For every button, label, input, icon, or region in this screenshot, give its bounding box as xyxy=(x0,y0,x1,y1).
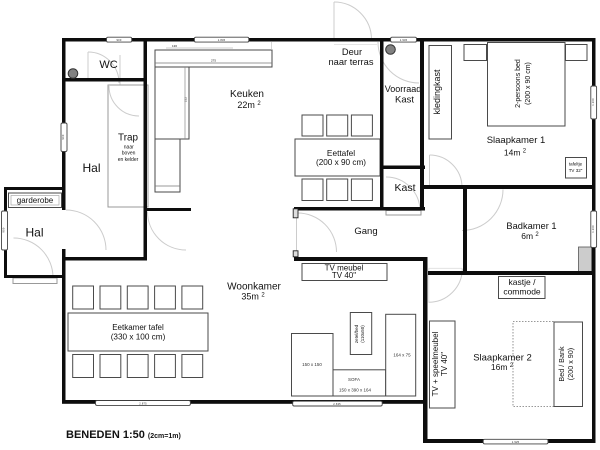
svg-text:900: 900 xyxy=(61,134,65,139)
svg-text:kastje /: kastje / xyxy=(509,277,537,287)
svg-text:SOFA: SOFA xyxy=(348,377,360,382)
svg-text:(330 x 100 cm): (330 x 100 cm) xyxy=(111,332,166,341)
svg-text:TV + speelmeubel: TV + speelmeubel xyxy=(431,331,440,396)
svg-text:2.875: 2.875 xyxy=(139,401,147,405)
svg-text:232: 232 xyxy=(184,97,188,102)
svg-text:(200 x 90): (200 x 90) xyxy=(566,348,575,380)
svg-text:1.945: 1.945 xyxy=(400,38,408,42)
svg-text:Bed / Bank: Bed / Bank xyxy=(557,346,566,382)
svg-text:TV 32": TV 32" xyxy=(569,168,583,173)
svg-text:Keuken: Keuken xyxy=(230,89,264,100)
svg-text:900: 900 xyxy=(117,38,122,42)
svg-text:150 x 150: 150 x 150 xyxy=(302,362,322,367)
svg-text:1.100: 1.100 xyxy=(591,225,595,233)
svg-text:tafeltje: tafeltje xyxy=(569,162,583,167)
svg-text:Deur: Deur xyxy=(342,47,362,57)
svg-text:boven: boven xyxy=(122,150,136,156)
svg-text:2.635: 2.635 xyxy=(333,402,341,406)
svg-text:1.100: 1.100 xyxy=(591,98,595,106)
svg-text:2-persoons bed: 2-persoons bed xyxy=(515,59,522,108)
svg-text:(200 x 90 cm): (200 x 90 cm) xyxy=(525,62,532,105)
svg-text:Kast: Kast xyxy=(395,94,414,105)
svg-text:Hal: Hal xyxy=(82,161,100,175)
svg-text:Hal: Hal xyxy=(25,226,43,240)
svg-text:kledingkast: kledingkast xyxy=(432,69,442,115)
svg-text:1.845: 1.845 xyxy=(218,38,226,42)
svg-text:1.925: 1.925 xyxy=(512,440,520,444)
svg-text:Gang: Gang xyxy=(354,226,377,237)
svg-text:en kelder: en kelder xyxy=(118,157,139,163)
svg-text:Trap: Trap xyxy=(118,133,138,144)
svg-text:naar terras: naar terras xyxy=(329,57,374,67)
svg-text:(110x50): (110x50) xyxy=(360,325,365,343)
svg-text:275: 275 xyxy=(211,59,216,63)
svg-text:TV 40": TV 40" xyxy=(440,352,449,376)
svg-text:Kast: Kast xyxy=(394,182,415,194)
svg-text:136: 136 xyxy=(172,44,177,48)
svg-text:Slaapkamer 1: Slaapkamer 1 xyxy=(487,135,546,146)
svg-text:zetel/bed: zetel/bed xyxy=(354,324,359,343)
svg-text:150 x 390 x 164: 150 x 390 x 164 xyxy=(339,388,372,393)
svg-text:(200 x 90 cm): (200 x 90 cm) xyxy=(316,158,366,167)
svg-text:900: 900 xyxy=(2,227,6,232)
svg-text:TV 40": TV 40" xyxy=(332,271,356,280)
svg-text:Eetkamer tafel: Eetkamer tafel xyxy=(112,323,164,332)
svg-text:WC: WC xyxy=(99,59,117,71)
svg-text:Badkamer 1: Badkamer 1 xyxy=(506,221,556,231)
svg-text:commode: commode xyxy=(503,287,541,297)
svg-text:garderobe: garderobe xyxy=(17,196,54,205)
svg-text:Voorraad: Voorraad xyxy=(385,84,422,94)
svg-text:Eettafel: Eettafel xyxy=(327,148,355,158)
svg-text:164 x 75: 164 x 75 xyxy=(393,353,411,358)
